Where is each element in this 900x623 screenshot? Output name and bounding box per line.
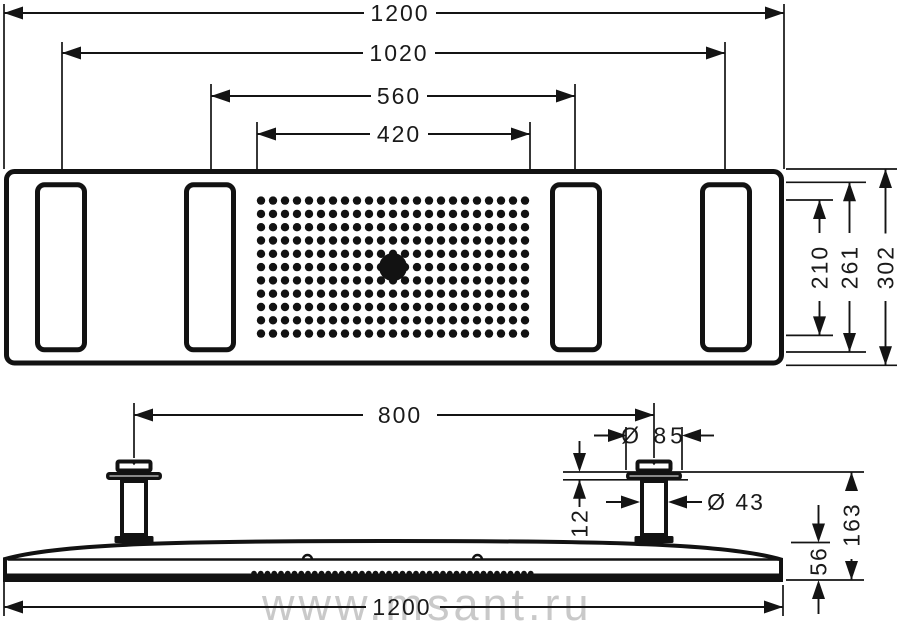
dim-label-slot-length: 261 bbox=[837, 245, 863, 289]
dim-label-bottom-overall-width: 1200 bbox=[372, 594, 431, 620]
slot-2 bbox=[187, 185, 234, 350]
dim-label-overall-depth: 302 bbox=[873, 245, 899, 289]
slot-1 bbox=[38, 185, 85, 350]
plan-view: 1200 1020 560 420 210 261 302 bbox=[4, 0, 899, 365]
dim-label-spray-field-width: 420 bbox=[377, 121, 421, 147]
center-outlet-dot bbox=[379, 253, 407, 281]
spray-face-band bbox=[3, 574, 783, 581]
slot-3 bbox=[553, 185, 600, 350]
slot-4 bbox=[703, 185, 750, 350]
dim-label-inner-slot-spacing: 560 bbox=[377, 83, 421, 109]
dim-label-outer-slot-spacing: 1020 bbox=[369, 40, 428, 66]
dim-label-pipe-diameter: Ø 43 bbox=[707, 489, 765, 515]
technical-drawing-page: www.msant.ru bbox=[0, 0, 900, 623]
dim-label-spray-field-depth: 210 bbox=[807, 245, 833, 289]
left-connector-post bbox=[108, 460, 161, 543]
dim-label-panel-thickness: 56 bbox=[806, 546, 832, 576]
dim-label-connector-spacing: 800 bbox=[378, 402, 422, 428]
dim-label-overall-width: 1200 bbox=[370, 0, 429, 26]
shower-panel-dimension-drawing: www.msant.ru bbox=[0, 0, 900, 623]
dim-label-escutcheon-height: 12 bbox=[567, 508, 593, 538]
dim-label-installation-depth: 163 bbox=[839, 502, 865, 546]
